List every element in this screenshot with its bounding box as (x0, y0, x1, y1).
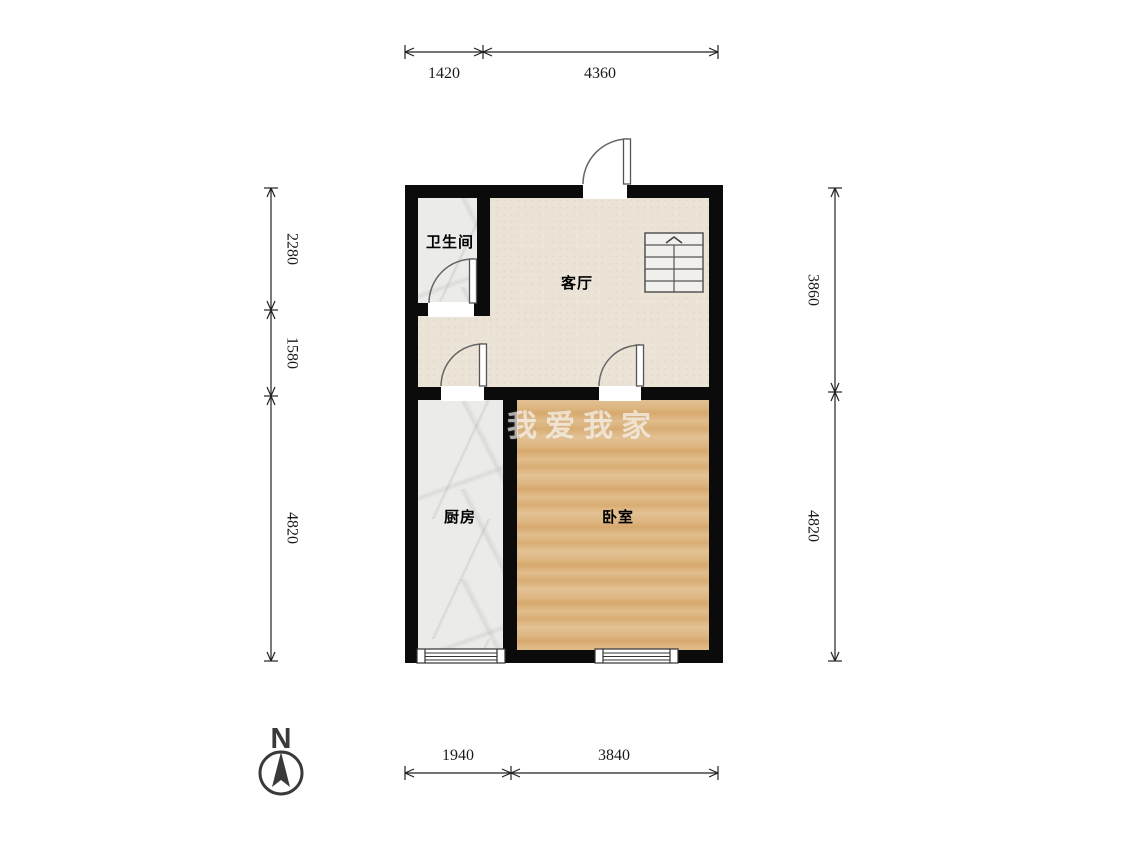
compass-north-label: N (271, 723, 292, 755)
bathroom-label: 卫生间 (426, 231, 474, 252)
wall-top (405, 185, 723, 198)
entrance-door-icon (583, 139, 631, 184)
kitchen-label: 厨房 (444, 506, 476, 527)
dim-left-2: 1580 (283, 337, 300, 369)
watermark: 我爱我家 (507, 401, 659, 445)
dim-right-1: 3860 (804, 274, 821, 306)
entrance-door-opening (583, 184, 627, 199)
north-arrow-icon (272, 752, 290, 787)
dim-top-1: 1420 (428, 65, 460, 82)
dim-bottom-1: 1940 (442, 747, 474, 764)
wall-left (405, 185, 418, 663)
dimension-top: 1420 4360 (395, 42, 735, 87)
dim-bottom-2: 3840 (598, 747, 630, 764)
compass: N (249, 714, 313, 804)
kitchen-door-opening (441, 386, 484, 401)
dimension-bottom: 1940 3840 (395, 742, 735, 787)
dim-right-2: 4820 (804, 510, 821, 542)
dimension-right: 3860 4820 (792, 178, 852, 673)
wall-bathroom-right (477, 185, 490, 316)
dimension-left: 2280 1580 4820 (250, 178, 310, 673)
bedroom-label: 卧室 (602, 506, 634, 527)
bedroom-door-opening (599, 386, 641, 401)
dim-left-1: 2280 (283, 233, 300, 265)
wall-bottom (405, 650, 723, 663)
living-room-label: 客厅 (561, 272, 593, 293)
bathroom-door-opening (428, 302, 474, 317)
dim-top-2: 4360 (584, 65, 616, 82)
dim-left-3: 4820 (283, 512, 300, 544)
floor-plan: 我爱我家 (0, 0, 1125, 844)
wall-right (709, 185, 723, 663)
